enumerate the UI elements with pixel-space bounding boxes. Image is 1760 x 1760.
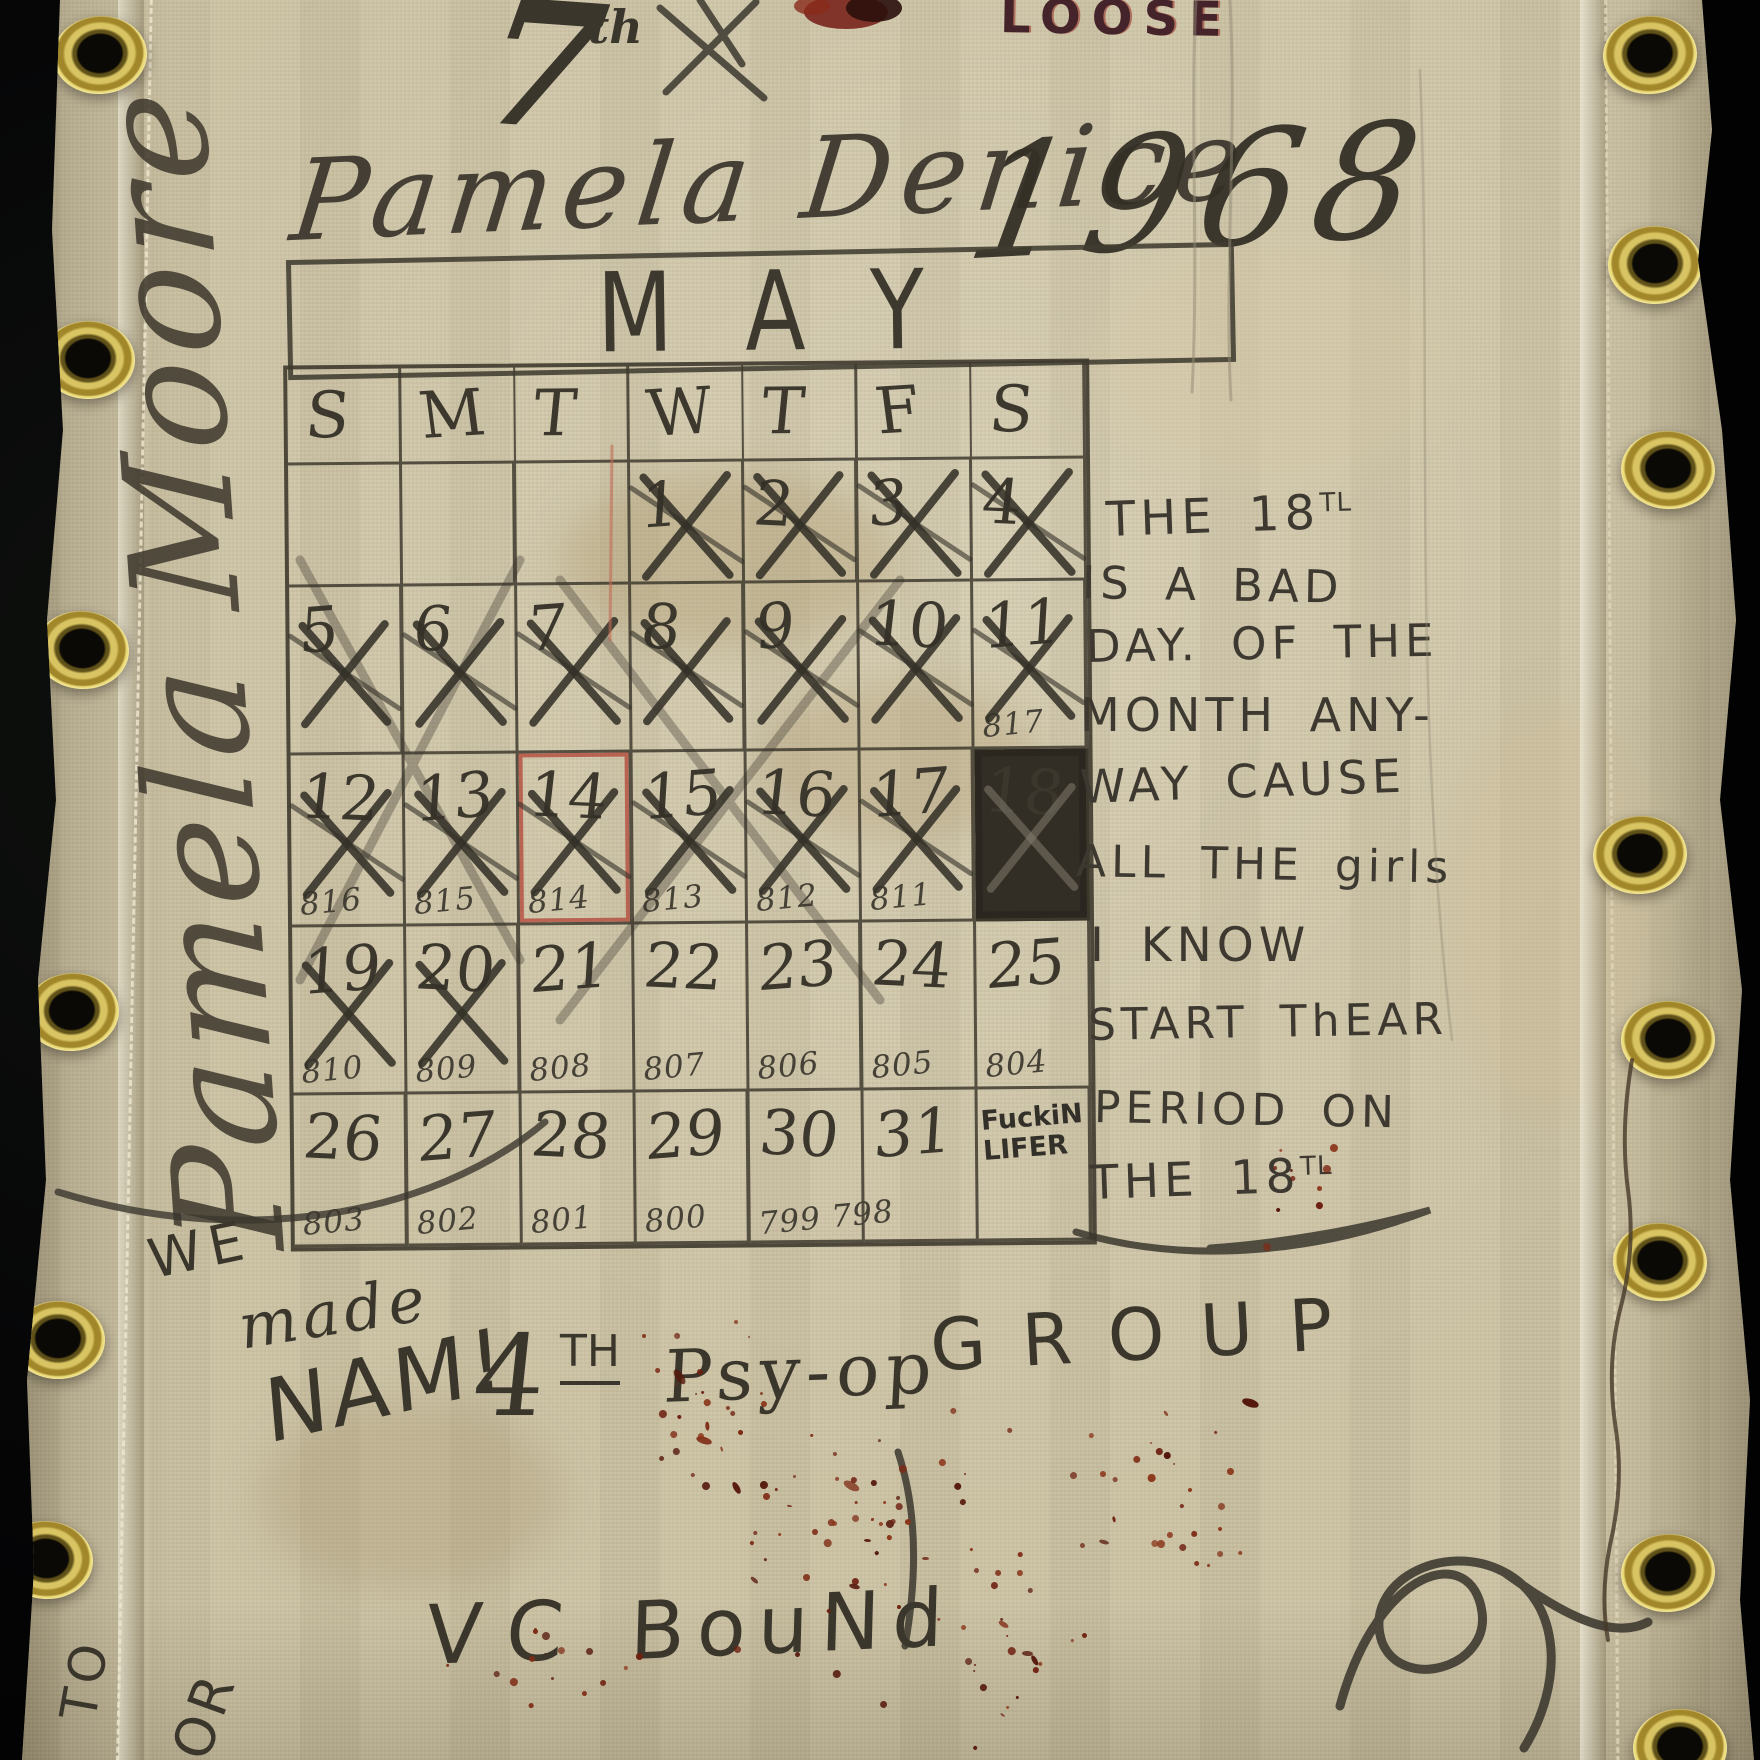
spatter-dot bbox=[1079, 1542, 1086, 1549]
spatter-dot bbox=[1150, 1441, 1153, 1444]
countdown-number: 806 bbox=[756, 1045, 821, 1087]
spatter-dot bbox=[895, 1502, 904, 1511]
day-number: 24 bbox=[868, 926, 955, 1002]
calendar-cell: 22807 bbox=[634, 923, 749, 1092]
spatter-dot bbox=[1016, 1569, 1023, 1576]
crossout-x bbox=[743, 628, 861, 708]
spatter-dot bbox=[642, 1334, 647, 1339]
calendar-cell: 14814 bbox=[519, 752, 634, 925]
crossout-x bbox=[287, 632, 403, 711]
spatter-dot bbox=[831, 1520, 837, 1526]
spatter-dot bbox=[528, 1702, 534, 1708]
spatter-dot bbox=[886, 1534, 892, 1540]
spatter-dot bbox=[1217, 1526, 1223, 1532]
spatter-dot bbox=[811, 1528, 819, 1536]
calendar-cell: 7 bbox=[517, 585, 632, 754]
spatter-dot bbox=[1261, 1241, 1272, 1252]
calendar-cell: 25804 bbox=[976, 921, 1091, 1090]
spatter-dot bbox=[842, 1479, 861, 1494]
calendar-cell: 27802 bbox=[408, 1093, 523, 1246]
calendar-cell: 31 bbox=[863, 1090, 978, 1243]
spatter-dot bbox=[879, 1700, 888, 1709]
side-note-line: ALL THE girls bbox=[1076, 836, 1454, 894]
spatter-dot bbox=[1216, 1550, 1225, 1559]
spatter-dot bbox=[1164, 1451, 1172, 1459]
grommet bbox=[1600, 13, 1699, 97]
day-header-cell: M bbox=[401, 368, 516, 465]
spatter-dot bbox=[905, 1520, 909, 1524]
calendar-cell: 13815 bbox=[405, 753, 520, 926]
spatter-dot bbox=[1007, 1645, 1018, 1656]
day-number: 23 bbox=[756, 926, 839, 1006]
spatter-dot bbox=[878, 1522, 883, 1527]
spatter-dot bbox=[850, 1513, 860, 1523]
calendar-cell: 19810 bbox=[292, 926, 407, 1095]
calendar-cell: 15813 bbox=[633, 752, 748, 925]
spatter-dot bbox=[1081, 1632, 1087, 1638]
spatter-dot bbox=[1016, 1695, 1019, 1698]
day-header-cell: S bbox=[287, 369, 402, 466]
grommet bbox=[22, 970, 121, 1054]
spatter-dot bbox=[1226, 1467, 1235, 1476]
day-header-letter: T bbox=[530, 377, 580, 451]
calendar-cell bbox=[516, 463, 631, 586]
spatter-dot bbox=[1151, 1540, 1159, 1548]
spatter-dot bbox=[1190, 1530, 1199, 1539]
spatter-dot bbox=[949, 1407, 958, 1416]
calendar-cell: 18 bbox=[975, 749, 1090, 922]
day-header-letter: S bbox=[302, 379, 353, 453]
spatter-dot bbox=[654, 1367, 661, 1374]
spatter-dot bbox=[874, 1550, 879, 1555]
spatter-dot bbox=[1218, 1502, 1226, 1510]
spatter-dot bbox=[989, 1581, 999, 1591]
spatter-dot bbox=[864, 1539, 871, 1543]
spatter-dot bbox=[1028, 1587, 1033, 1592]
spatter-dot bbox=[855, 1501, 858, 1504]
day-number: 31 bbox=[872, 1093, 955, 1173]
day-number: 30 bbox=[756, 1095, 843, 1171]
psyop-text: Psy-op bbox=[662, 1325, 940, 1419]
spatter-dot bbox=[1032, 1666, 1040, 1674]
spatter-dot bbox=[850, 1476, 858, 1484]
rotated-to-text: TO bbox=[49, 1634, 120, 1725]
seven-superscript: th bbox=[588, 0, 643, 54]
fourth-number: 4 bbox=[467, 1312, 552, 1442]
spatter-dot bbox=[959, 1624, 966, 1631]
spatter-dot bbox=[964, 1473, 966, 1475]
calendar-cell: 6 bbox=[403, 586, 518, 755]
spatter-dot bbox=[905, 1518, 912, 1525]
spatter-dot bbox=[921, 1557, 928, 1560]
side-note-line: IS A BAD bbox=[1082, 556, 1344, 614]
bottom-right-signature-flourish bbox=[1340, 1561, 1648, 1748]
spatter-dot bbox=[1022, 1651, 1033, 1657]
calendar-cell: 4 bbox=[972, 459, 1087, 582]
grommet bbox=[1610, 1220, 1709, 1304]
calendar-cell: 3 bbox=[858, 460, 973, 583]
calendar-cell: 30799 798 bbox=[750, 1090, 865, 1243]
day-number: 21 bbox=[528, 928, 611, 1008]
spatter-dot bbox=[1132, 1454, 1142, 1464]
spatter-dot bbox=[1029, 1654, 1039, 1666]
crossout-x bbox=[629, 629, 745, 708]
spatter-dot bbox=[672, 1447, 680, 1455]
grommet bbox=[1618, 1531, 1717, 1615]
spatter-dot bbox=[896, 1495, 901, 1500]
calendar-cell: 29800 bbox=[636, 1091, 751, 1244]
calendar-grid: SMTWTFS123456789101181712816138151481415… bbox=[283, 359, 1097, 1252]
spatter-dot bbox=[690, 1472, 695, 1477]
vc-text: VC bbox=[423, 1583, 591, 1684]
spatter-dot bbox=[998, 1620, 1010, 1630]
spatter-dot bbox=[1172, 1463, 1175, 1466]
countdown-number: 807 bbox=[642, 1046, 707, 1088]
side-note-line: I KNOW bbox=[1090, 918, 1310, 973]
spatter-dot bbox=[1100, 1470, 1107, 1477]
calendar-cell: FuckiNLIFER bbox=[977, 1089, 1092, 1242]
day-number: 27 bbox=[416, 1097, 499, 1177]
spatter-dot bbox=[761, 1492, 771, 1502]
day-number: 28 bbox=[528, 1097, 615, 1173]
spatter-dot bbox=[731, 1481, 743, 1496]
spatter-dot bbox=[999, 1617, 1003, 1621]
calendar-cell: 26803 bbox=[294, 1094, 409, 1247]
grommet bbox=[0, 1518, 96, 1602]
day-number: 29 bbox=[644, 1095, 727, 1175]
day-header-letter: W bbox=[643, 374, 718, 452]
crossout-x bbox=[515, 630, 633, 710]
spatter-dot bbox=[695, 1435, 713, 1447]
day-header-cell: S bbox=[971, 363, 1086, 460]
calendar-cell: 12816 bbox=[291, 754, 406, 927]
spatter-dot bbox=[701, 1482, 711, 1492]
spatter-dot bbox=[1006, 1635, 1008, 1637]
spatter-dot bbox=[658, 1455, 665, 1462]
calendar-month-banner: MAY bbox=[286, 242, 1236, 380]
day-header-letter: F bbox=[871, 373, 925, 450]
spatter-dot bbox=[953, 1482, 964, 1493]
countdown-number: 808 bbox=[528, 1047, 593, 1089]
grommet bbox=[1621, 1001, 1715, 1079]
grommet bbox=[1618, 428, 1717, 512]
spatter-dot bbox=[995, 1569, 1003, 1577]
spatter-dot bbox=[974, 1664, 977, 1667]
loose-graffiti: LOOSE bbox=[1000, 0, 1234, 48]
spatter-dot bbox=[1187, 1488, 1192, 1493]
countdown-number: 804 bbox=[984, 1043, 1049, 1085]
spatter-dot bbox=[999, 1713, 1005, 1718]
countdown-number: 801 bbox=[529, 1199, 594, 1241]
spatter-dot bbox=[835, 1476, 841, 1482]
day-number: 26 bbox=[300, 1099, 387, 1175]
spatter-dot bbox=[1155, 1447, 1164, 1456]
calendar-cell: 20809 bbox=[406, 925, 521, 1094]
bound-text: BouNd bbox=[629, 1571, 956, 1678]
spatter-dot bbox=[1088, 1432, 1095, 1439]
grommet bbox=[1633, 1709, 1727, 1760]
spatter-dot bbox=[697, 1432, 705, 1440]
calendar-cell: 17811 bbox=[861, 750, 976, 923]
spatter-dot bbox=[972, 1745, 978, 1751]
spatter-dot bbox=[1006, 1427, 1014, 1435]
spatter-dot bbox=[705, 1422, 710, 1431]
spatter-dot bbox=[719, 1447, 723, 1452]
spatter-dot bbox=[964, 1656, 974, 1666]
spatter-dot bbox=[1156, 1538, 1167, 1549]
spatter-dot bbox=[810, 1434, 815, 1439]
spatter-dot bbox=[1177, 1543, 1187, 1553]
spatter-dot bbox=[969, 1548, 973, 1552]
spatter-dot bbox=[1163, 1410, 1169, 1417]
calendar-cell: 9 bbox=[745, 583, 860, 752]
month-title: MAY bbox=[525, 244, 998, 378]
spatter-dot bbox=[793, 1475, 796, 1478]
spatter-dot bbox=[669, 1430, 677, 1438]
spatter-dot bbox=[1213, 1431, 1218, 1436]
spatter-dot bbox=[1113, 1476, 1119, 1482]
calendar-cell: 10 bbox=[859, 582, 974, 751]
spatter-dot bbox=[1070, 1639, 1074, 1643]
spatter-dot bbox=[1241, 1396, 1259, 1408]
spatter-dot bbox=[787, 1504, 792, 1507]
spatter-dot bbox=[1148, 1474, 1157, 1483]
spatter-dot bbox=[1112, 1516, 1116, 1523]
grommet bbox=[1608, 226, 1702, 304]
spatter-dot bbox=[938, 1457, 947, 1466]
spatter-dot bbox=[882, 1500, 886, 1504]
side-note-line: PERIOD ON bbox=[1094, 1082, 1400, 1138]
day-header-letter: M bbox=[415, 376, 490, 454]
calendar-cell: 2 bbox=[744, 461, 859, 584]
rotated-or-text: OR bbox=[159, 1663, 248, 1760]
calendar-cell: 23806 bbox=[748, 923, 863, 1092]
spatter-dot bbox=[898, 1464, 909, 1475]
scratch-line bbox=[1420, 70, 1452, 1040]
lifer-note: FuckiNLIFER bbox=[980, 1099, 1087, 1167]
countdown-number: 803 bbox=[301, 1201, 366, 1243]
day-number: 25 bbox=[984, 924, 1067, 1004]
side-note-line: MONTH ANY- bbox=[1080, 688, 1435, 742]
spatter-dot bbox=[1069, 1471, 1078, 1480]
side-note-line: WAY CAUSE bbox=[1079, 749, 1407, 814]
spatter-dot bbox=[1018, 1551, 1023, 1556]
calendar-cell bbox=[288, 465, 403, 588]
countdown-number: 802 bbox=[415, 1200, 480, 1242]
calendar-cell: 8 bbox=[631, 584, 746, 753]
spatter-dot bbox=[1165, 1531, 1173, 1539]
spatter-dot bbox=[759, 1480, 768, 1489]
spatter-dot bbox=[599, 1679, 607, 1687]
day-header-cell: T bbox=[743, 365, 858, 462]
fourth-superscript: TH bbox=[560, 1326, 620, 1385]
grommet bbox=[1590, 813, 1689, 897]
spatter-dot bbox=[871, 1480, 877, 1486]
spatter-dot bbox=[885, 1520, 894, 1529]
spatter-dot bbox=[737, 1429, 743, 1435]
x-scribble bbox=[660, 0, 764, 98]
calendar-cell: 21808 bbox=[520, 924, 635, 1093]
day-number: 22 bbox=[640, 928, 727, 1004]
spatter-dot bbox=[871, 1518, 874, 1521]
calendar-cell: 24805 bbox=[862, 922, 977, 1091]
spatter-dot bbox=[764, 1558, 767, 1561]
canvas-banner: Pamela Moore 7 th LOOSE Pamela Denice 19… bbox=[0, 0, 1760, 1760]
day-header-letter: S bbox=[986, 373, 1037, 447]
calendar-cell: 11817 bbox=[973, 581, 1088, 750]
spatter-dot bbox=[1194, 1561, 1199, 1566]
spatter-dot bbox=[1180, 1503, 1185, 1508]
calendar-cell: 1 bbox=[630, 462, 745, 585]
grommet bbox=[11, 1301, 105, 1379]
side-note-line: THE 18TL bbox=[1089, 1148, 1334, 1211]
spatter-dot bbox=[734, 1319, 739, 1324]
side-note-line: THE 18TL bbox=[1105, 483, 1353, 548]
day-header-cell: W bbox=[629, 366, 744, 463]
side-note-line: DAY. OF THE bbox=[1086, 614, 1439, 673]
day-header-cell: T bbox=[515, 367, 630, 464]
spatter-dot bbox=[974, 1568, 980, 1574]
calendar-cell: 28801 bbox=[522, 1092, 637, 1245]
spatter-dot bbox=[1005, 1706, 1010, 1711]
spatter-dot bbox=[832, 1669, 842, 1679]
spatter-dot bbox=[891, 1518, 896, 1523]
spatter-dot bbox=[959, 1498, 967, 1506]
day-header-letter: T bbox=[758, 375, 808, 449]
spatter-dot bbox=[1099, 1539, 1109, 1546]
day-header-cell: F bbox=[857, 364, 972, 461]
red-ink-blob bbox=[794, 0, 902, 29]
spatter-dot bbox=[585, 1646, 595, 1656]
spatter-dot bbox=[1037, 1661, 1043, 1667]
calendar-cell: 5 bbox=[289, 586, 404, 755]
spatter-dot bbox=[624, 1666, 628, 1670]
group-text: GROUP bbox=[928, 1281, 1370, 1388]
photo-stage: Pamela Moore 7 th LOOSE Pamela Denice 19… bbox=[0, 0, 1760, 1760]
note-underline-flourish bbox=[1076, 1210, 1430, 1251]
side-note-line: START ThEAR bbox=[1088, 994, 1449, 1051]
spatter-dot bbox=[1207, 1563, 1211, 1567]
spatter-dot bbox=[877, 1439, 881, 1443]
spatter-dot bbox=[777, 1532, 781, 1536]
calendar-cell bbox=[402, 464, 517, 587]
spatter-dot bbox=[749, 1541, 754, 1546]
countdown-number: 800 bbox=[643, 1198, 708, 1240]
countdown-number: 805 bbox=[870, 1044, 935, 1086]
spatter-dot bbox=[775, 1488, 778, 1491]
spatter-dot bbox=[752, 1531, 758, 1537]
spatter-dot bbox=[973, 1670, 976, 1673]
spatter-dot bbox=[581, 1690, 588, 1697]
spatter-dot bbox=[1275, 1207, 1281, 1213]
spatter-dot bbox=[823, 1538, 833, 1548]
spatter-dot bbox=[1237, 1551, 1242, 1556]
crossout-x bbox=[401, 631, 519, 711]
spatter-dot bbox=[827, 1517, 836, 1526]
spatter-dot bbox=[979, 1683, 988, 1692]
spatter-dot bbox=[832, 1452, 837, 1457]
calendar-cell: 16812 bbox=[747, 751, 862, 924]
